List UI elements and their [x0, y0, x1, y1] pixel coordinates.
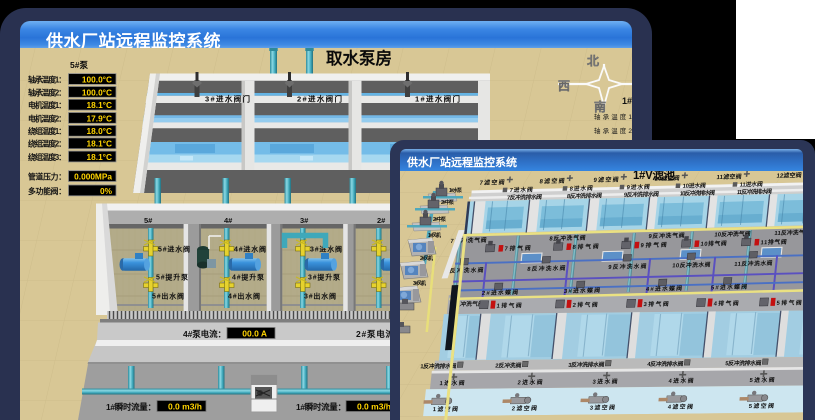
svg-text:电机温度2：: 电机温度2： — [28, 113, 66, 123]
svg-text:3#风机: 3#风机 — [413, 280, 426, 287]
svg-text:2#中泵: 2#中泵 — [441, 199, 455, 206]
svg-text:100.0°C: 100.0°C — [82, 74, 112, 84]
svg-text:100.0°C: 100.0°C — [82, 87, 112, 97]
svg-text:2反冲洗阀: 2反冲洗阀 — [495, 361, 522, 369]
svg-text:5#提升泵: 5#提升泵 — [156, 273, 188, 282]
svg-text:2#: 2# — [377, 216, 386, 225]
svg-text:1#进水阀门: 1#进水阀门 — [415, 94, 460, 104]
svg-text:2#风机: 2#风机 — [420, 255, 433, 262]
svg-text:4#: 4# — [224, 216, 233, 225]
svg-text:1#瞬时流量：: 1#瞬时流量： — [106, 402, 156, 412]
svg-text:绕组温度2：: 绕组温度2： — [28, 139, 66, 149]
svg-text:取水泵房: 取水泵房 — [326, 48, 392, 68]
svg-text:4#进水阀: 4#进水阀 — [234, 245, 266, 254]
svg-text:2#泵电流: 2#泵电流 — [356, 329, 394, 339]
svg-text:2#中泵: 2#中泵 — [433, 216, 447, 223]
svg-text:3#提升泵: 3#提升泵 — [308, 273, 340, 282]
svg-text:18.1°C: 18.1°C — [87, 152, 112, 162]
svg-text:4#提升泵: 4#提升泵 — [232, 273, 264, 282]
svg-text:0.000MPa: 0.000MPa — [74, 172, 112, 182]
svg-text:轴承温度2：: 轴承温度2： — [28, 87, 66, 97]
svg-text:3#进水阀门: 3#进水阀门 — [205, 94, 250, 104]
svg-text:5#: 5# — [144, 216, 153, 225]
svg-text:5#进水阀: 5#进水阀 — [158, 245, 190, 254]
svg-text:管道压力：: 管道压力： — [28, 172, 66, 182]
svg-text:多功能阀：: 多功能阀： — [28, 186, 66, 196]
svg-text:1#V滤池: 1#V滤池 — [633, 171, 676, 182]
svg-text:18.1°C: 18.1°C — [87, 100, 112, 110]
svg-text:北: 北 — [587, 53, 599, 68]
svg-text:0%: 0% — [100, 186, 113, 196]
svg-text:2#进水阀门: 2#进水阀门 — [297, 94, 342, 104]
svg-text:轴承温度1：: 轴承温度1： — [28, 74, 66, 84]
svg-text:5#出水阀: 5#出水阀 — [152, 292, 184, 301]
svg-text:3#: 3# — [300, 216, 309, 225]
svg-text:1#: 1# — [622, 96, 632, 106]
svg-text:17.9°C: 17.9°C — [87, 113, 112, 123]
svg-text:18.1°C: 18.1°C — [87, 139, 112, 149]
svg-text:绕组温度3：: 绕组温度3： — [28, 152, 66, 162]
svg-text:绕组温度1：: 绕组温度1： — [28, 126, 66, 136]
svg-text:0.0 m3/h: 0.0 m3/h — [168, 402, 202, 412]
svg-text:3#出水阀: 3#出水阀 — [304, 292, 336, 301]
svg-text:电机温度1：: 电机温度1： — [28, 100, 66, 110]
svg-text:1#水泵: 1#水泵 — [449, 187, 463, 194]
svg-text:1#瞬时流量：: 1#瞬时流量： — [296, 402, 346, 412]
svg-text:0.0 m3/h: 0.0 m3/h — [357, 402, 391, 412]
svg-text:00.0 A: 00.0 A — [242, 329, 267, 339]
svg-text:18.0°C: 18.0°C — [87, 126, 112, 136]
svg-text:西: 西 — [558, 79, 570, 93]
svg-text:1#风机: 1#风机 — [428, 232, 441, 239]
svg-text:4#泵电流：: 4#泵电流： — [183, 329, 226, 339]
svg-text:4#出水阀: 4#出水阀 — [228, 292, 260, 301]
svg-text:南: 南 — [594, 99, 606, 114]
svg-text:5#泵: 5#泵 — [70, 60, 88, 70]
